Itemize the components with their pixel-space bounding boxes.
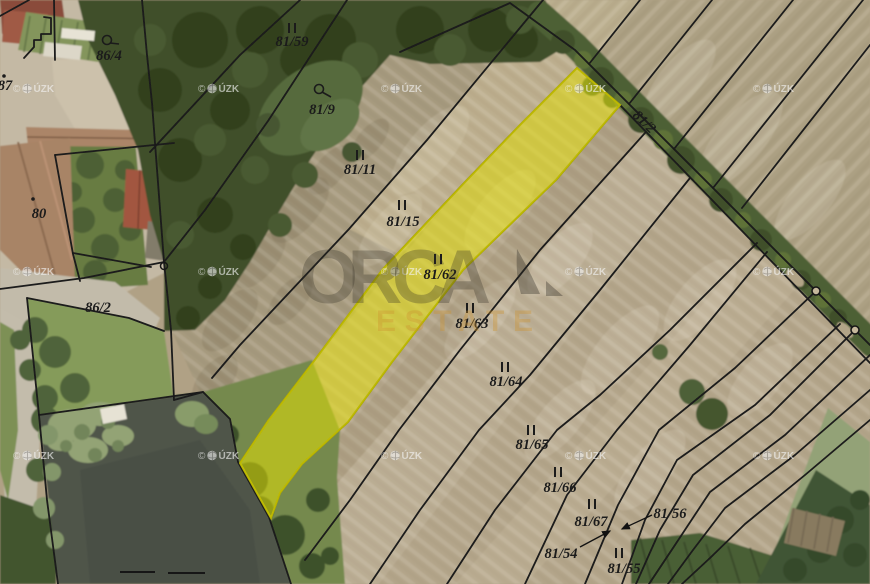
svg-text:81/65: 81/65 bbox=[515, 437, 548, 453]
svg-text:©: © bbox=[198, 451, 206, 462]
svg-text:81/66: 81/66 bbox=[543, 480, 577, 496]
svg-text:ÚZK: ÚZK bbox=[219, 82, 240, 95]
svg-text:81/9: 81/9 bbox=[309, 102, 335, 118]
svg-text:ÚZK: ÚZK bbox=[586, 265, 607, 278]
svg-text:©: © bbox=[565, 451, 573, 462]
svg-text:ÚZK: ÚZK bbox=[774, 449, 795, 462]
svg-text:ÚZK: ÚZK bbox=[34, 265, 55, 278]
svg-text:©: © bbox=[13, 84, 21, 95]
svg-text:©: © bbox=[565, 267, 573, 278]
svg-text:©: © bbox=[565, 84, 573, 95]
svg-text:©: © bbox=[198, 84, 206, 95]
svg-text:81/11: 81/11 bbox=[344, 162, 376, 178]
svg-text:©: © bbox=[198, 267, 206, 278]
svg-text:81/54: 81/54 bbox=[544, 546, 577, 562]
svg-text:ÚZK: ÚZK bbox=[402, 449, 423, 462]
svg-text:81/15: 81/15 bbox=[386, 214, 419, 230]
svg-text:ÚZK: ÚZK bbox=[34, 449, 55, 462]
svg-text:ÚZK: ÚZK bbox=[586, 449, 607, 462]
svg-text:ÚZK: ÚZK bbox=[219, 265, 240, 278]
svg-text:81/64: 81/64 bbox=[489, 374, 522, 390]
svg-text:81/56: 81/56 bbox=[653, 506, 687, 522]
svg-text:©: © bbox=[753, 267, 761, 278]
svg-text:©: © bbox=[13, 267, 21, 278]
svg-text:ÚZK: ÚZK bbox=[402, 82, 423, 95]
svg-text:©: © bbox=[381, 451, 389, 462]
svg-text:86/4: 86/4 bbox=[96, 48, 122, 64]
svg-text:81/67: 81/67 bbox=[574, 514, 608, 530]
svg-text:ÚZK: ÚZK bbox=[774, 82, 795, 95]
svg-text:ÚZK: ÚZK bbox=[586, 82, 607, 95]
svg-text:80: 80 bbox=[32, 206, 47, 222]
svg-text:87: 87 bbox=[0, 78, 13, 94]
svg-text:©: © bbox=[13, 451, 21, 462]
svg-text:©: © bbox=[753, 451, 761, 462]
svg-text:86/2: 86/2 bbox=[85, 300, 111, 316]
svg-text:81/55: 81/55 bbox=[607, 561, 640, 577]
svg-text:81/59: 81/59 bbox=[275, 34, 308, 50]
svg-text:©: © bbox=[381, 84, 389, 95]
svg-text:ÚZK: ÚZK bbox=[774, 265, 795, 278]
svg-text:ÚZK: ÚZK bbox=[219, 449, 240, 462]
svg-text:©: © bbox=[753, 84, 761, 95]
svg-text:ÚZK: ÚZK bbox=[34, 82, 55, 95]
